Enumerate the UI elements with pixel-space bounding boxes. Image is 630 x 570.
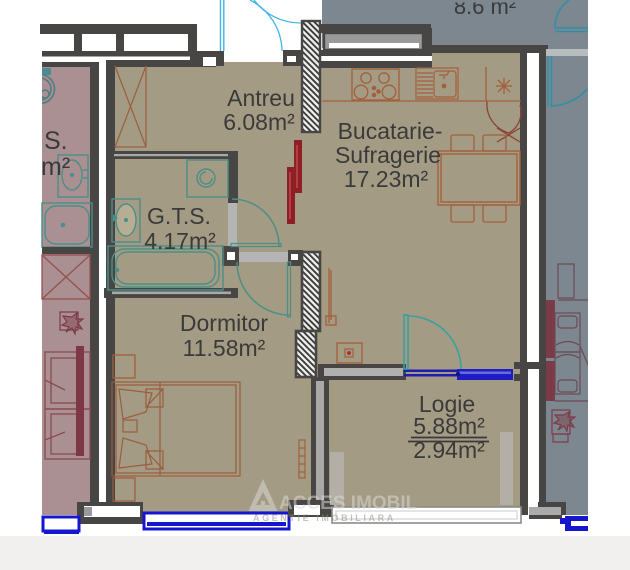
svg-text:AGENTIE IMOBILIARA: AGENTIE IMOBILIARA xyxy=(253,513,396,523)
svg-text:m²: m² xyxy=(41,153,70,181)
svg-text:ACCES IMOBIL: ACCES IMOBIL xyxy=(279,493,418,514)
svg-text:G.T.S.: G.T.S. xyxy=(147,203,211,229)
svg-text:Bucatarie-: Bucatarie- xyxy=(338,118,443,144)
svg-text:Antreu: Antreu xyxy=(227,85,295,111)
svg-text:Dormitor: Dormitor xyxy=(180,310,269,336)
svg-text:11.58m²: 11.58m² xyxy=(183,335,266,361)
svg-text:6.08m²: 6.08m² xyxy=(223,109,295,135)
svg-text:S.: S. xyxy=(44,127,68,155)
svg-text:8.6 m²: 8.6 m² xyxy=(454,0,516,19)
svg-text:5.88m²: 5.88m² xyxy=(413,413,485,439)
svg-text:Sufragerie: Sufragerie xyxy=(335,142,441,168)
svg-text:17.23m²: 17.23m² xyxy=(344,166,429,192)
svg-text:4.17m²: 4.17m² xyxy=(144,228,216,254)
